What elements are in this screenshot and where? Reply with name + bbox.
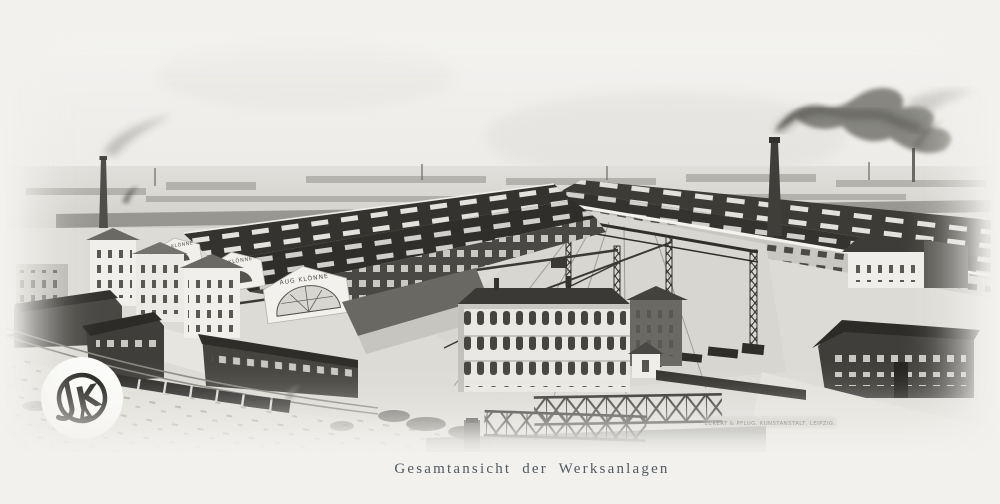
lithograph-artwork: AUG KLÖNNE AUG KLÖNNE AUG KLÖNNE [6, 6, 994, 452]
dark-gable-barn [924, 240, 968, 288]
right-white-shed [842, 238, 968, 288]
company-logo-badge: K A [41, 357, 123, 439]
printer-credit: ECKERT & PFLUG, KUNSTANSTALT, LEIPZIG. [704, 417, 836, 428]
scanned-print-page: AUG KLÖNNE AUG KLÖNNE AUG KLÖNNE [0, 0, 1000, 504]
caption: Gesamtansicht der Werksanlagen [394, 461, 669, 478]
admin-windows [462, 311, 626, 387]
right-dark-workshop [812, 320, 980, 398]
locomotive [271, 398, 290, 413]
factory-panorama-illustration: AUG KLÖNNE AUG KLÖNNE AUG KLÖNNE [6, 6, 994, 452]
administration-building [458, 276, 630, 392]
faint-haze [156, 41, 456, 111]
bridge-pier [464, 420, 480, 452]
printer-credit-text: ECKERT & PFLUG, KUNSTANSTALT, LEIPZIG. [705, 421, 836, 427]
front-truss-bridge [484, 411, 647, 441]
